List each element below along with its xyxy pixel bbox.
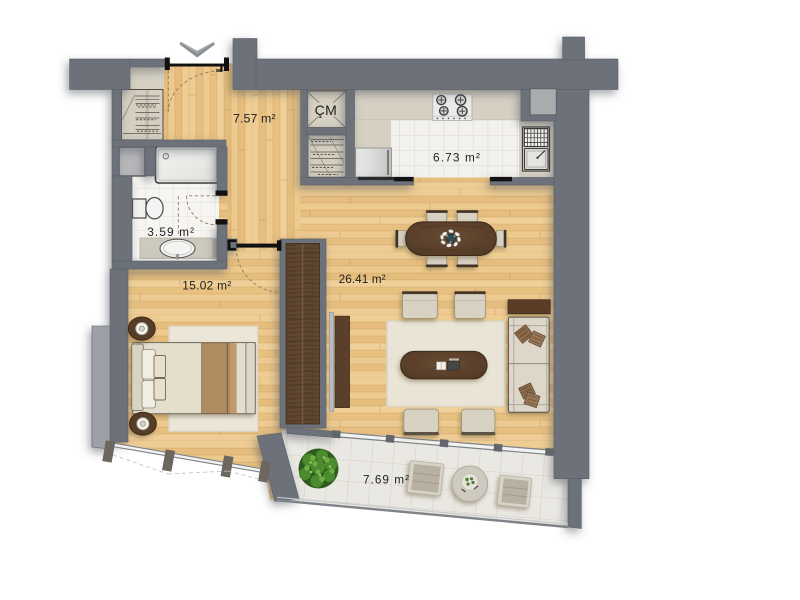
svg-text:7.69 m²: 7.69 m² [363, 472, 410, 486]
svg-text:3.59 m²: 3.59 m² [147, 225, 195, 239]
svg-text:6.73 m²: 6.73 m² [433, 150, 481, 164]
svg-text:ÇM: ÇM [315, 102, 338, 118]
svg-text:7.57 m²: 7.57 m² [233, 112, 276, 126]
svg-text:26.41 m²: 26.41 m² [339, 272, 386, 286]
svg-text:15.02 m²: 15.02 m² [182, 279, 231, 293]
